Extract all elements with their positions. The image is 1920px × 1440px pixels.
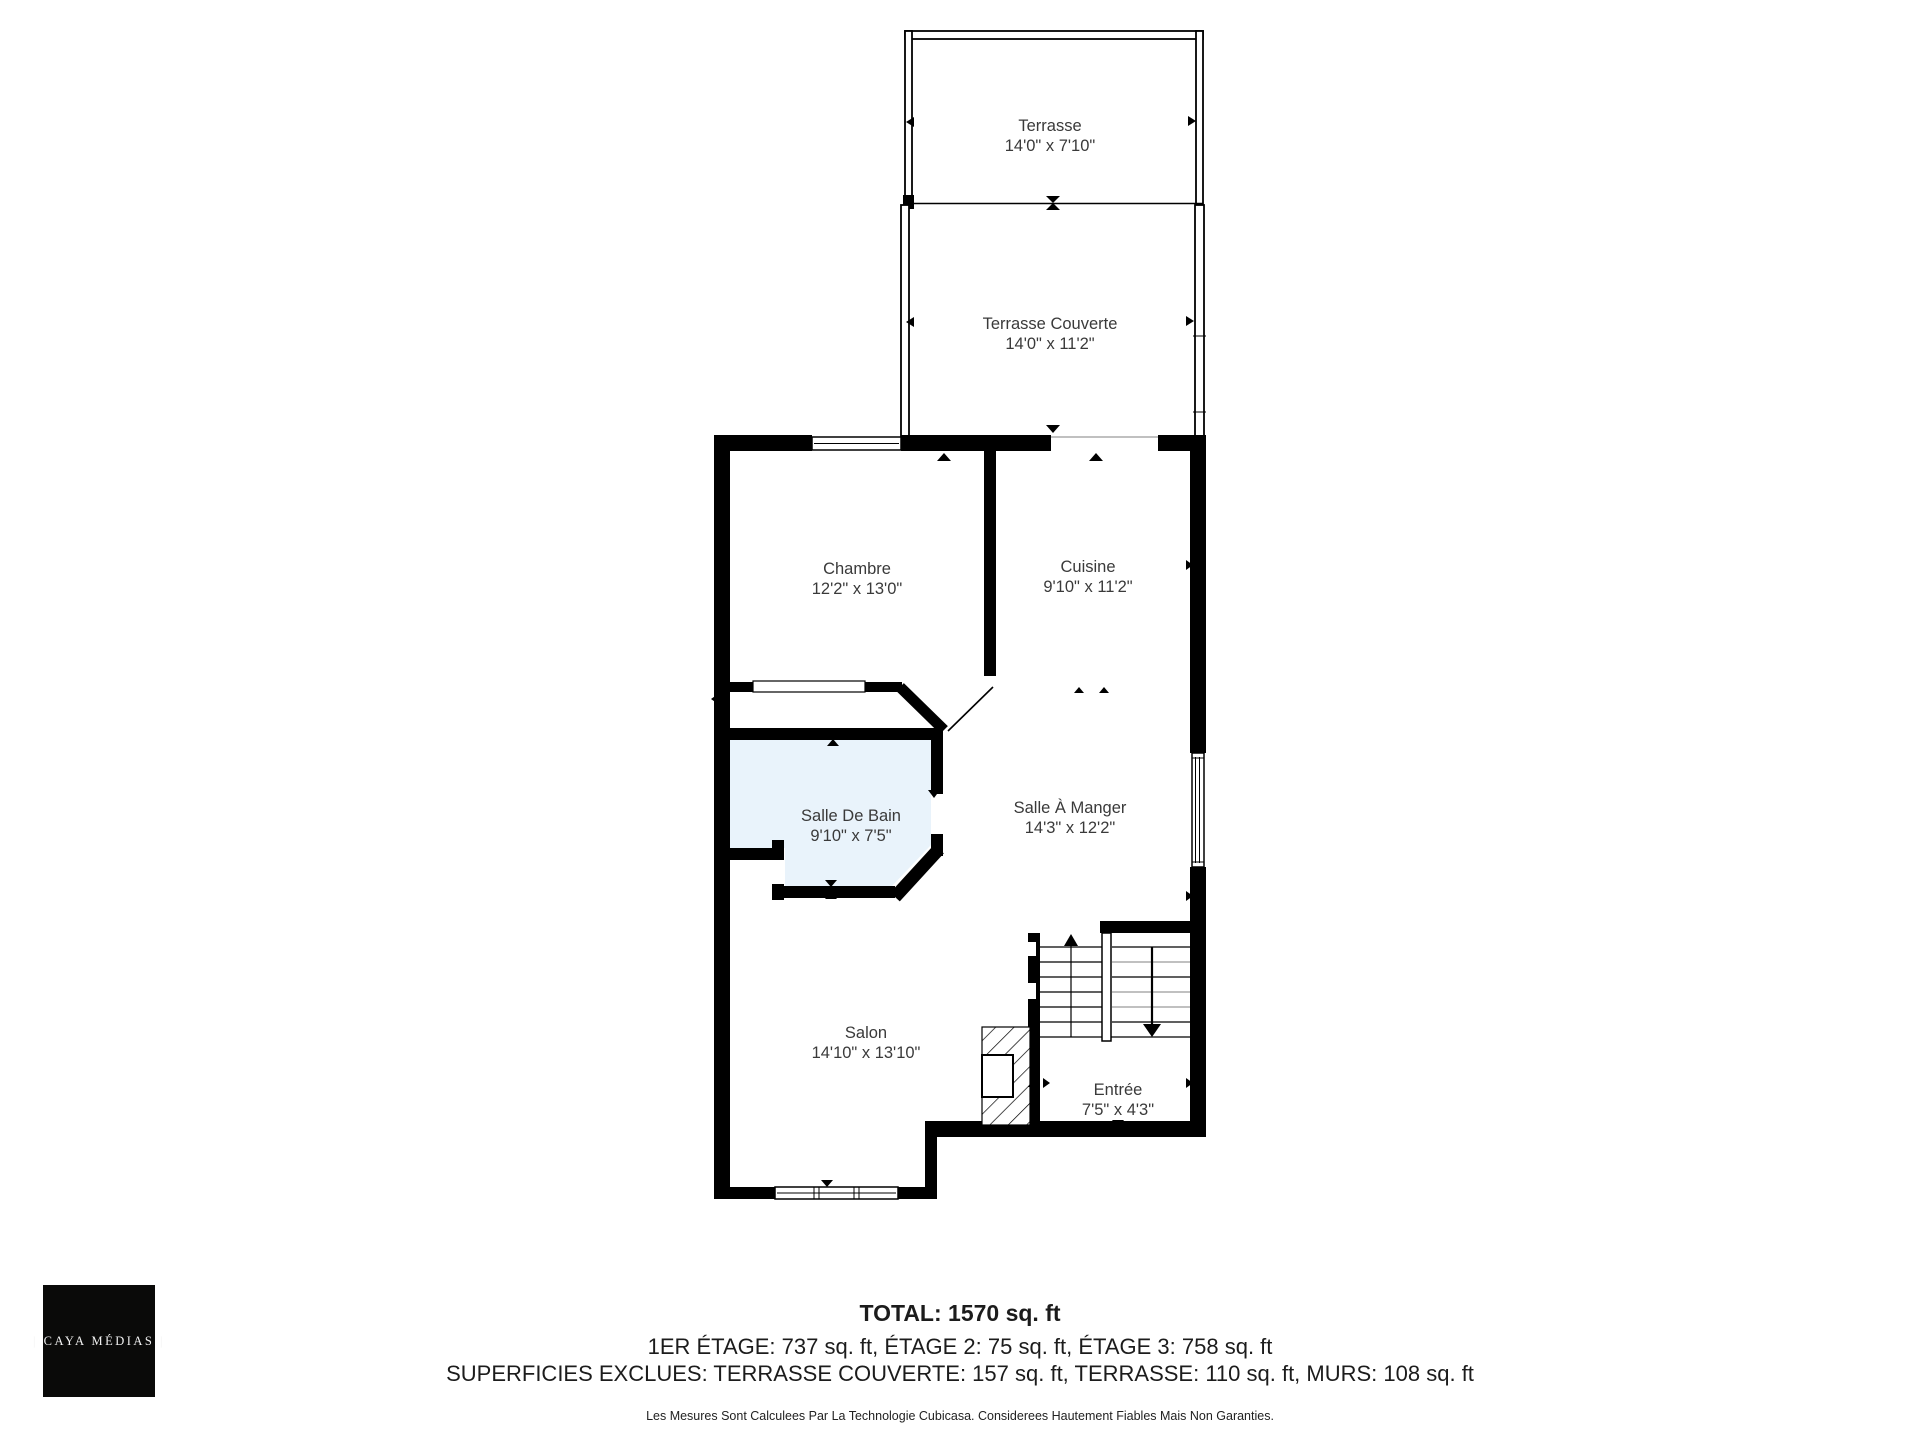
chambre-cuisine-wall — [984, 451, 996, 676]
room-dims: 14'0" x 11'2" — [983, 335, 1118, 355]
top-wall-b — [901, 435, 1051, 451]
room-name: Cuisine — [1043, 558, 1132, 578]
room-name: Salle De Bain — [801, 807, 901, 827]
caya-medias-logo: | CAYA MÉDIAS | — [43, 1285, 155, 1397]
room-name: Salon — [812, 1024, 921, 1044]
floor-areas-text: 1ER ÉTAGE: 737 sq. ft, ÉTAGE 2: 75 sq. f… — [0, 1334, 1920, 1360]
room-dims: 12'2" x 13'0" — [812, 580, 903, 600]
stairs — [1040, 933, 1190, 1041]
kitchen-marker-b — [1099, 687, 1109, 693]
salon-bottom-b — [898, 1187, 937, 1199]
room-label-terrasse-couverte: Terrasse Couverte 14'0" x 11'2" — [983, 315, 1118, 354]
right-wall-lower — [1190, 867, 1206, 1137]
bottom-wall-entree — [925, 1121, 1206, 1137]
kitchen-marker-a — [1074, 687, 1084, 693]
room-dims: 7'5" x 4'3" — [1082, 1101, 1154, 1121]
room-label-salle-a-manger: Salle À Manger 14'3" x 12'2" — [1014, 799, 1127, 838]
bathroom-bottom-wall — [777, 886, 895, 898]
room-dims: 9'10" x 11'2" — [1043, 578, 1132, 598]
room-name: Terrasse Couverte — [983, 315, 1118, 335]
room-name: Terrasse — [1005, 117, 1096, 137]
room-dims: 9'10" x 7'5" — [801, 827, 901, 847]
room-dims: 14'3" x 12'2" — [1014, 819, 1127, 839]
top-wall-a — [714, 435, 812, 451]
room-label-cuisine: Cuisine 9'10" x 11'2" — [1043, 558, 1132, 597]
tc-right-door-marker — [1186, 316, 1194, 326]
bathroom-top-wall — [714, 728, 943, 740]
room-dims: 14'0" x 7'10" — [1005, 137, 1096, 157]
stairs-down-arrow — [1143, 1024, 1161, 1037]
door-leaf — [948, 687, 993, 731]
terrasse-divider-marker-top — [1046, 196, 1060, 203]
salon-bottom-a — [714, 1187, 775, 1199]
patio-door-marker-down — [1089, 453, 1103, 461]
room-name: Entrée — [1082, 1081, 1154, 1101]
room-dims: 14'10" x 13'10" — [812, 1044, 921, 1064]
excluded-areas-text: SUPERFICIES EXCLUES: TERRASSE COUVERTE: … — [0, 1361, 1920, 1387]
room-label-salle-de-bain: Salle De Bain 9'10" x 7'5" — [801, 807, 901, 846]
chambre-top-marker — [937, 453, 951, 461]
logo-text: | CAYA MÉDIAS | — [33, 1334, 165, 1349]
salon-window-marker — [821, 1180, 833, 1187]
total-area-text: TOTAL: 1570 sq. ft — [0, 1300, 1920, 1327]
room-label-salon: Salon 14'10" x 13'10" — [812, 1024, 921, 1063]
room-name: Salle À Manger — [1014, 799, 1127, 819]
fireplace — [982, 1027, 1030, 1125]
room-label-entree: Entrée 7'5" x 4'3" — [1082, 1081, 1154, 1120]
entree-left-marker — [1043, 1078, 1050, 1088]
room-label-terrasse: Terrasse 14'0" x 7'10" — [1005, 117, 1096, 156]
patio-door-marker-up — [1046, 425, 1060, 433]
terrasse-right-door-marker — [1188, 116, 1196, 126]
firebox — [982, 1055, 1013, 1097]
disclaimer-text: Les Mesures Sont Calculees Par La Techno… — [0, 1409, 1920, 1423]
floor-plan-drawing — [0, 0, 1920, 1440]
stair-separator — [1102, 933, 1111, 1041]
left-wall — [714, 435, 730, 1199]
chambre-cased-opening — [753, 681, 865, 692]
stairs-up-arrow — [1064, 934, 1078, 946]
stair-top-wall — [1100, 921, 1192, 933]
door-markers — [711, 116, 1196, 1187]
room-name: Chambre — [812, 560, 903, 580]
closet-wall-h — [714, 848, 782, 860]
dining-right-window — [1192, 753, 1204, 867]
room-label-chambre: Chambre 12'2" x 13'0" — [812, 560, 903, 599]
floor-plan-page: Terrasse 14'0" x 7'10" Terrasse Couverte… — [0, 0, 1920, 1440]
right-wall-upper — [1190, 435, 1206, 753]
